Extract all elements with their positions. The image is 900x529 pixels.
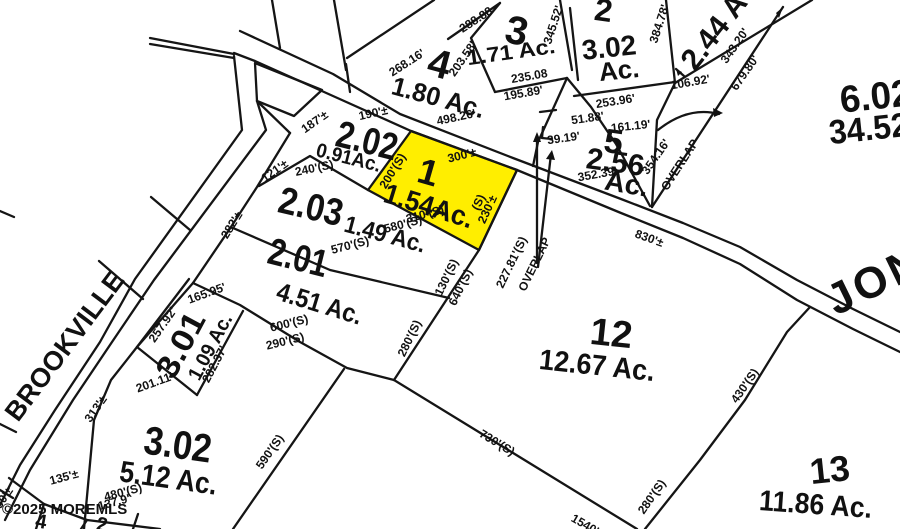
svg-text:34.52: 34.52 (827, 106, 900, 152)
svg-text:©2025 MOREMLS: ©2025 MOREMLS (2, 501, 127, 518)
svg-text:Ac.: Ac. (597, 53, 640, 87)
svg-text:13: 13 (808, 447, 852, 492)
